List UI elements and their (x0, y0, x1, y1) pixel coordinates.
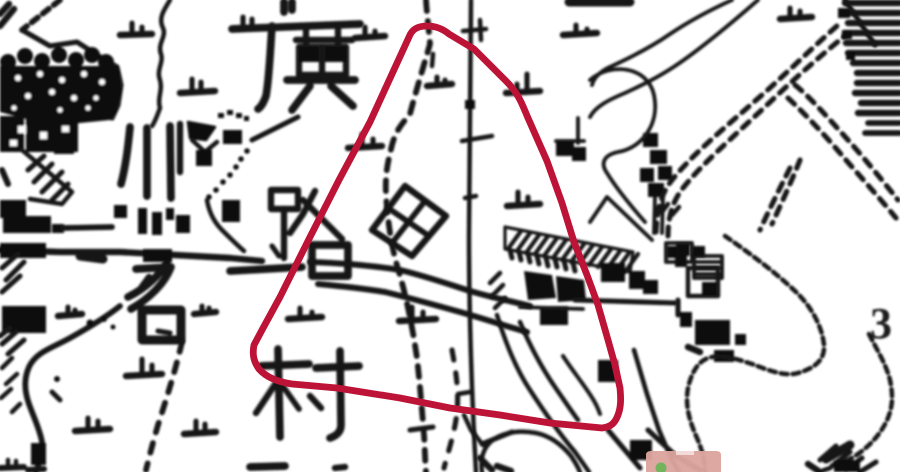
svg-text:3: 3 (870, 299, 892, 348)
